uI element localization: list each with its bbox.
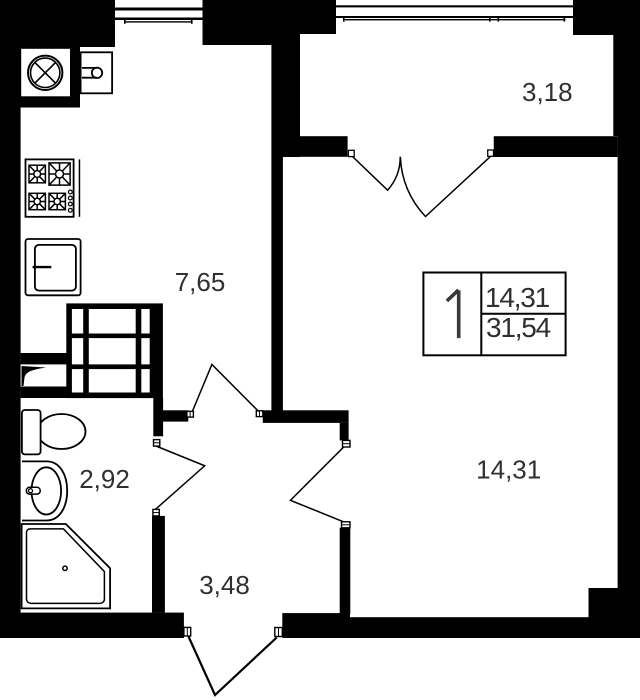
svg-text:7,65: 7,65 [175, 267, 226, 297]
svg-text:3,18: 3,18 [522, 77, 573, 107]
svg-text:14,31: 14,31 [485, 282, 550, 313]
svg-text:31,54: 31,54 [486, 312, 551, 343]
svg-text:3,48: 3,48 [199, 570, 250, 600]
svg-text:14,31: 14,31 [476, 455, 541, 485]
svg-text:2,92: 2,92 [79, 464, 130, 494]
